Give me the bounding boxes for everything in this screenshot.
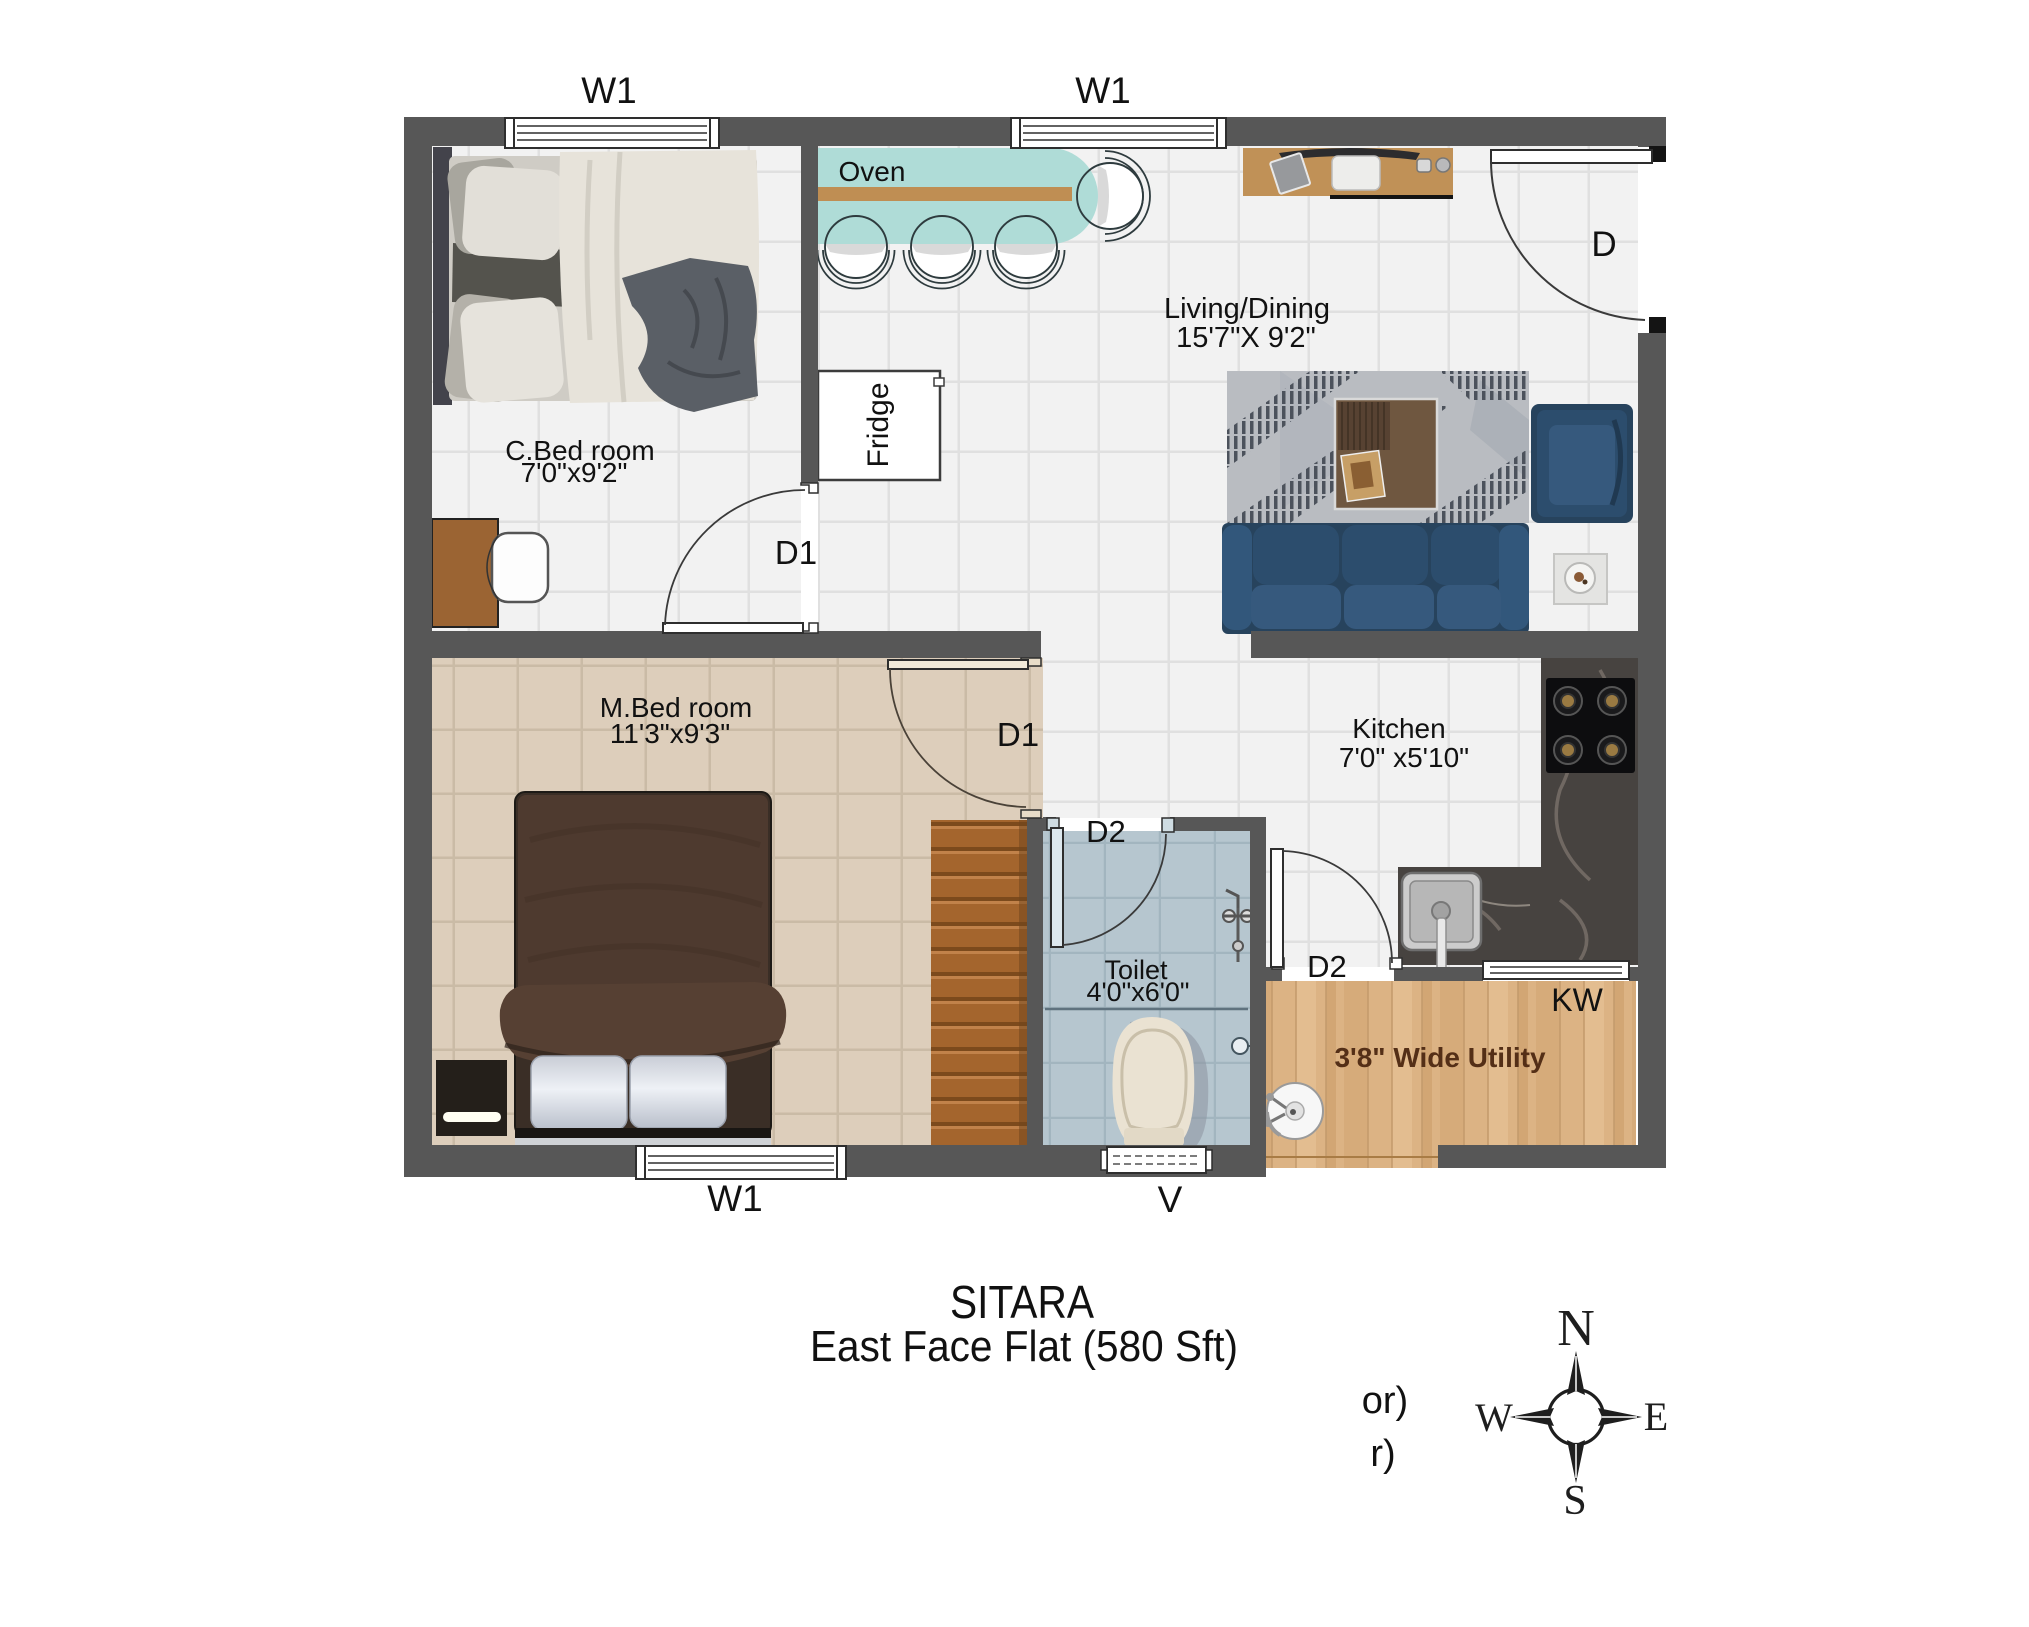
svg-text:W1: W1 <box>1075 70 1131 111</box>
svg-text:Fridge: Fridge <box>862 382 895 467</box>
svg-text:East Face Flat (580 Sft): East Face Flat (580 Sft) <box>810 1322 1238 1371</box>
svg-text:Living/Dining: Living/Dining <box>1164 293 1330 325</box>
svg-text:D2: D2 <box>1307 949 1347 984</box>
svg-text:V: V <box>1158 1179 1183 1220</box>
svg-text:W1: W1 <box>707 1178 763 1219</box>
svg-text:Oven: Oven <box>839 156 906 187</box>
svg-text:SITARA: SITARA <box>950 1276 1094 1328</box>
svg-text:E: E <box>1644 1394 1668 1439</box>
svg-text:D2: D2 <box>1086 814 1126 849</box>
svg-text:KW: KW <box>1551 982 1603 1018</box>
svg-text:W1: W1 <box>581 70 637 111</box>
svg-text:7'0" x5'10": 7'0" x5'10" <box>1339 742 1469 773</box>
svg-text:3'8" Wide Utility: 3'8" Wide Utility <box>1334 1042 1545 1073</box>
svg-text:15'7"X 9'2": 15'7"X 9'2" <box>1176 322 1316 354</box>
svg-text:11'3"x9'3": 11'3"x9'3" <box>610 718 730 749</box>
svg-text:D: D <box>1591 225 1616 264</box>
svg-text:S: S <box>1563 1478 1586 1524</box>
svg-text:N: N <box>1557 1300 1595 1357</box>
svg-text:4'0"x6'0": 4'0"x6'0" <box>1086 977 1189 1007</box>
svg-text:Kitchen: Kitchen <box>1352 713 1445 744</box>
svg-text:D1: D1 <box>997 716 1039 753</box>
svg-text:r): r) <box>1370 1433 1395 1475</box>
svg-text:W: W <box>1475 1395 1513 1440</box>
svg-text:7'0"x9'2": 7'0"x9'2" <box>521 457 628 488</box>
svg-text:or): or) <box>1362 1380 1408 1422</box>
svg-text:D1: D1 <box>775 534 817 571</box>
